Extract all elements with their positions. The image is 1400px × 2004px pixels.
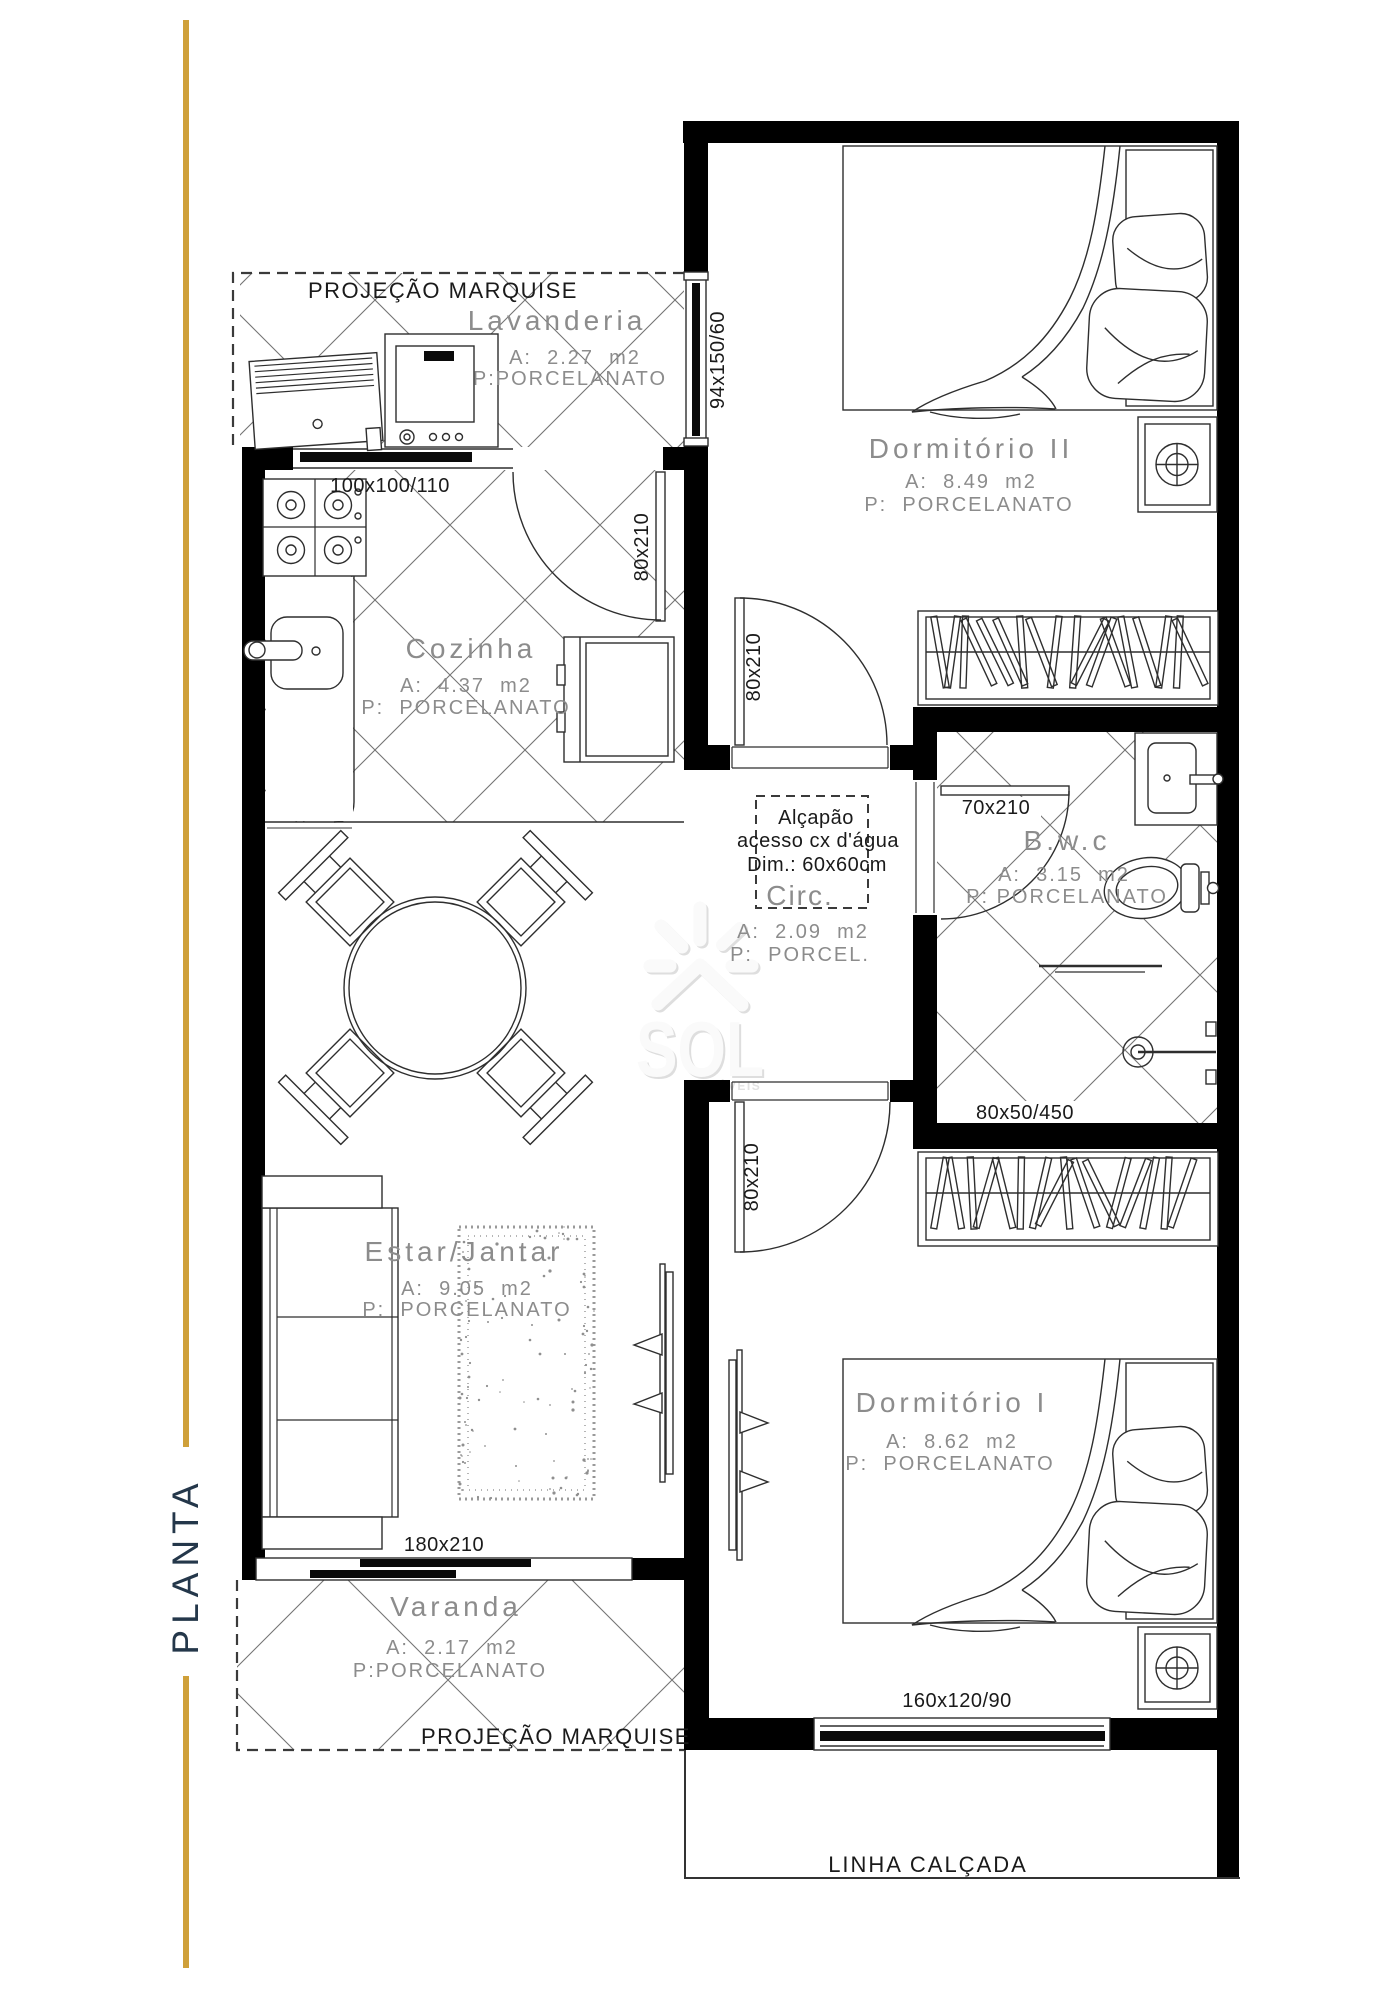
svg-text:80x50/450: 80x50/450 bbox=[976, 1102, 1074, 1124]
svg-text:A: 8.49 m2: A: 8.49 m2 bbox=[905, 471, 1037, 493]
svg-text:Estar/Jantar: Estar/Jantar bbox=[365, 1236, 564, 1267]
svg-text:Dormitório I: Dormitório I bbox=[856, 1387, 1049, 1418]
svg-text:P:PORCELANATO: P:PORCELANATO bbox=[353, 1660, 547, 1682]
svg-text:P: PORCELANATO: P: PORCELANATO bbox=[361, 697, 570, 719]
svg-text:PLANTA: PLANTA bbox=[165, 1477, 206, 1654]
svg-text:P: PORCELANATO: P: PORCELANATO bbox=[362, 1299, 571, 1321]
svg-text:80x210: 80x210 bbox=[631, 513, 653, 582]
svg-text:A: 2.09 m2: A: 2.09 m2 bbox=[737, 921, 869, 943]
svg-text:Circ.: Circ. bbox=[766, 880, 834, 911]
svg-text:80x210: 80x210 bbox=[743, 633, 765, 702]
svg-text:A: 3.15 m2: A: 3.15 m2 bbox=[998, 864, 1130, 886]
svg-text:Lavanderia: Lavanderia bbox=[468, 305, 647, 336]
svg-text:P: PORCELANATO: P: PORCELANATO bbox=[864, 494, 1073, 516]
svg-text:acesso cx d'água: acesso cx d'água bbox=[737, 830, 899, 852]
svg-text:A: 4.37 m2: A: 4.37 m2 bbox=[400, 675, 532, 697]
svg-text:Dim.: 60x60cm: Dim.: 60x60cm bbox=[747, 854, 887, 876]
svg-text:A: 9.05 m2: A: 9.05 m2 bbox=[401, 1278, 533, 1300]
svg-text:180x210: 180x210 bbox=[404, 1534, 484, 1556]
svg-text:Cozinha: Cozinha bbox=[406, 633, 537, 664]
svg-text:P:PORCELANATO: P:PORCELANATO bbox=[473, 368, 667, 390]
svg-text:80x210: 80x210 bbox=[741, 1143, 763, 1212]
svg-text:LINHA CALÇADA: LINHA CALÇADA bbox=[828, 1852, 1028, 1877]
svg-text:A: 2.27 m2: A: 2.27 m2 bbox=[509, 347, 641, 369]
svg-text:P: PORCELANATO: P: PORCELANATO bbox=[845, 1453, 1054, 1475]
svg-text:P: PORCELANATO: P: PORCELANATO bbox=[966, 886, 1168, 908]
svg-text:Dormitório II: Dormitório II bbox=[869, 433, 1073, 464]
svg-text:B.w.c: B.w.c bbox=[1024, 825, 1111, 856]
svg-text:A: 8.62 m2: A: 8.62 m2 bbox=[886, 1431, 1018, 1453]
svg-text:PROJEÇÃO MARQUISE: PROJEÇÃO MARQUISE bbox=[421, 1724, 691, 1749]
svg-text:94x150/60: 94x150/60 bbox=[707, 311, 729, 409]
svg-text:PROJEÇÃO MARQUISE: PROJEÇÃO MARQUISE bbox=[308, 278, 578, 303]
svg-text:100x100/110: 100x100/110 bbox=[330, 475, 450, 497]
svg-text:A: 2.17 m2: A: 2.17 m2 bbox=[386, 1637, 518, 1659]
svg-text:Alçapão: Alçapão bbox=[778, 807, 854, 829]
svg-text:Varanda: Varanda bbox=[390, 1591, 522, 1622]
svg-text:70x210: 70x210 bbox=[962, 797, 1031, 819]
svg-text:160x120/90: 160x120/90 bbox=[902, 1690, 1012, 1712]
svg-text:P: PORCEL.: P: PORCEL. bbox=[730, 944, 870, 966]
